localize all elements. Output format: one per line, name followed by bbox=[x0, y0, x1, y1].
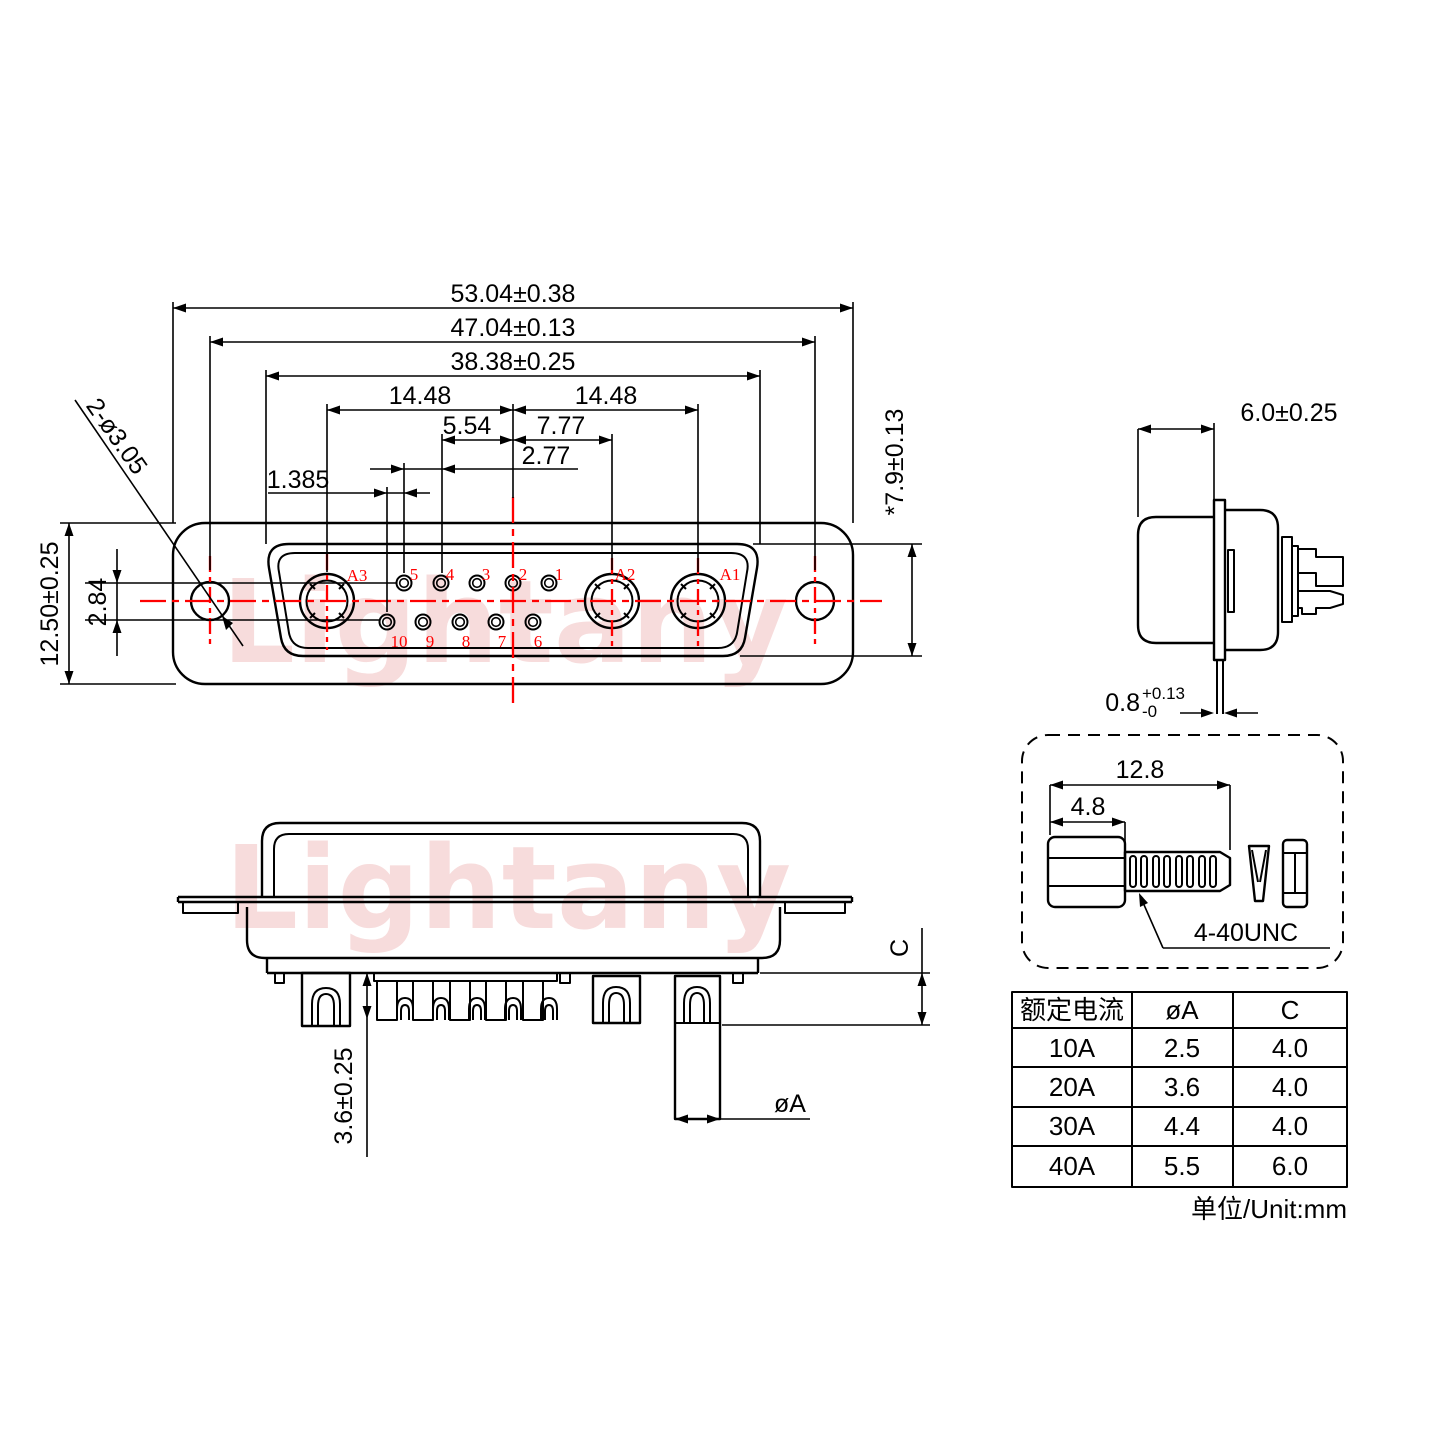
table-header-c: C bbox=[1281, 995, 1300, 1025]
dim-depth: 6.0±0.25 bbox=[1240, 399, 1337, 427]
label-pin8: 8 bbox=[462, 632, 471, 651]
table-row-20a: 20A 3.6 4.0 bbox=[1049, 1072, 1308, 1102]
side-plate-extension bbox=[1217, 660, 1223, 714]
svg-text:5.5: 5.5 bbox=[1164, 1151, 1200, 1181]
dim-777: 7.77 bbox=[537, 412, 586, 440]
dim-plate-tol-sup: +0.13 bbox=[1142, 684, 1185, 703]
base-plate bbox=[267, 958, 758, 973]
wedge-pin-lines bbox=[1252, 850, 1266, 882]
svg-text:20A: 20A bbox=[1049, 1072, 1096, 1102]
unit-note: 单位/Unit:mm bbox=[1191, 1194, 1347, 1224]
dim-row-spacing: 2.84 bbox=[84, 578, 112, 627]
label-a2: A2 bbox=[615, 565, 636, 584]
dim-hole-span: 47.04±0.13 bbox=[451, 314, 576, 342]
dim-1385: 1.385 bbox=[267, 466, 330, 494]
spec-table: 额定电流 øA C 10A 2.5 4.0 20A 3.6 4.0 30A 4.… bbox=[1012, 992, 1347, 1224]
barrel-a3 bbox=[302, 973, 350, 1026]
label-a1: A1 bbox=[720, 565, 741, 584]
svg-text:30A: 30A bbox=[1049, 1111, 1096, 1141]
thread-label: 4-40UNC bbox=[1194, 919, 1298, 947]
label-pin1: 1 bbox=[555, 565, 564, 584]
table-header-current: 额定电流 bbox=[1020, 995, 1124, 1025]
watermark-bottom: Lightany bbox=[225, 822, 791, 956]
dim-plate-thickness: 0.8 bbox=[1105, 689, 1140, 717]
side-terminal-bar bbox=[1282, 537, 1292, 622]
svg-text:40A: 40A bbox=[1049, 1151, 1096, 1181]
dim-c-ref: C bbox=[886, 939, 914, 957]
label-pin9: 9 bbox=[426, 632, 435, 651]
label-pin10: 10 bbox=[391, 632, 408, 651]
side-flange-plate bbox=[1214, 500, 1225, 660]
label-pin5: 5 bbox=[410, 565, 419, 584]
bottom-dimension-lines bbox=[363, 928, 931, 1157]
drawing-canvas: Lightany bbox=[0, 0, 1440, 1440]
dim-277: 2.77 bbox=[522, 442, 571, 470]
dim-pin-length: 3.6±0.25 bbox=[330, 1047, 358, 1144]
side-view: 6.0±0.25 0.8 +0.13 -0 bbox=[1105, 399, 1343, 721]
dim-554: 5.54 bbox=[443, 412, 492, 440]
signal-pin-comb bbox=[374, 973, 557, 1020]
label-a3: A3 bbox=[347, 566, 368, 585]
dim-pitch-left: 14.48 bbox=[389, 382, 452, 410]
label-pin2: 2 bbox=[519, 565, 528, 584]
table-header-dia: øA bbox=[1165, 995, 1199, 1025]
barrel-a2 bbox=[593, 976, 640, 1023]
label-pin6: 6 bbox=[534, 632, 543, 651]
side-shell bbox=[1138, 517, 1214, 643]
front-view: Lightany bbox=[36, 280, 922, 706]
screw-head bbox=[1048, 837, 1125, 907]
dim-screw-length: 12.8 bbox=[1116, 756, 1165, 784]
table-row-40a: 40A 5.5 6.0 bbox=[1049, 1151, 1308, 1181]
svg-text:4.0: 4.0 bbox=[1272, 1033, 1308, 1063]
screw-threads bbox=[1130, 856, 1216, 887]
table-row-10a: 10A 2.5 4.0 bbox=[1049, 1033, 1308, 1063]
barrel-a1-long-pin bbox=[675, 976, 720, 1119]
side-dimension-lines bbox=[1138, 423, 1258, 718]
dim-pitch-right: 14.48 bbox=[575, 382, 638, 410]
dim-plate-tol-sub: -0 bbox=[1142, 702, 1157, 721]
dim-overall-width: 53.04±0.38 bbox=[451, 280, 576, 308]
svg-text:4.0: 4.0 bbox=[1272, 1111, 1308, 1141]
side-terminal-upper bbox=[1298, 549, 1343, 586]
table-row-30a: 30A 4.4 4.0 bbox=[1049, 1111, 1308, 1141]
dim-screw-head: 4.8 bbox=[1071, 793, 1106, 821]
technical-drawing: Lightany bbox=[0, 0, 1440, 1440]
label-pin7: 7 bbox=[498, 632, 507, 651]
hex-nut-facets bbox=[1283, 853, 1307, 893]
bottom-view: Lightany bbox=[178, 822, 930, 1157]
label-pin4: 4 bbox=[446, 565, 455, 584]
dim-cavity-width: 38.38±0.25 bbox=[451, 348, 576, 376]
svg-text:4.4: 4.4 bbox=[1164, 1111, 1200, 1141]
screw-detail: 12.8 4.8 4-40UNC bbox=[1022, 735, 1343, 968]
svg-text:3.6: 3.6 bbox=[1164, 1072, 1200, 1102]
side-rear-body bbox=[1225, 510, 1278, 650]
dim-overall-height: 12.50±0.25 bbox=[36, 542, 64, 667]
svg-text:2.5: 2.5 bbox=[1164, 1033, 1200, 1063]
dim-cavity-height: *7.9±0.13 bbox=[881, 409, 909, 516]
svg-text:10A: 10A bbox=[1049, 1033, 1096, 1063]
svg-text:4.0: 4.0 bbox=[1272, 1072, 1308, 1102]
screw-head-facets bbox=[1048, 858, 1125, 886]
side-terminal-lower bbox=[1298, 591, 1343, 614]
label-pin3: 3 bbox=[482, 565, 491, 584]
dim-pin-diameter: øA bbox=[774, 1090, 806, 1118]
watermark-front: Lightany bbox=[222, 556, 788, 690]
side-inner-step bbox=[1228, 550, 1234, 612]
dim-mount-holes: 2-ø3.05 bbox=[80, 393, 152, 480]
svg-text:6.0: 6.0 bbox=[1272, 1151, 1308, 1181]
